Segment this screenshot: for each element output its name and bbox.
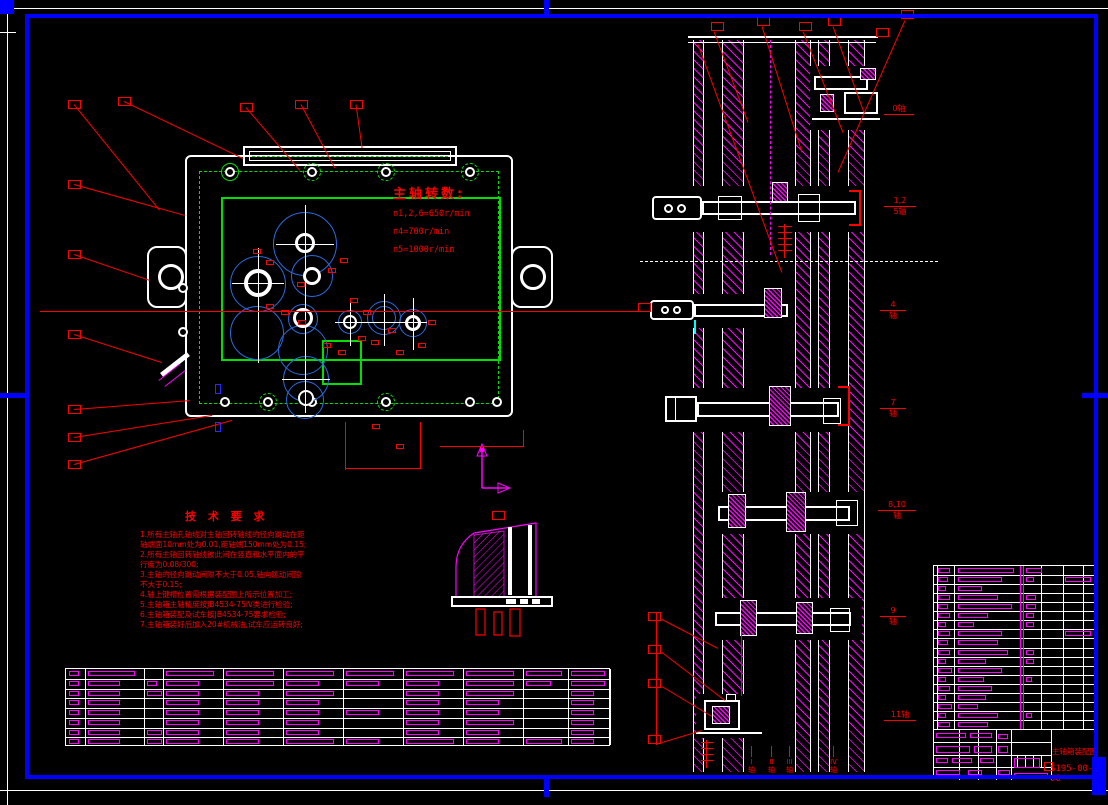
corner-cross-v <box>7 25 8 40</box>
drawing-border <box>25 14 1098 779</box>
cad-drawing-canvas: 主轴转数: n1,2,6=650r/min n4=700r/min n5=100… <box>0 0 1108 805</box>
paper-edge-bottom <box>0 790 1108 791</box>
center-mark-top <box>544 0 549 16</box>
corner-cross-h <box>0 32 16 33</box>
paper-edge-left <box>7 0 8 805</box>
corner-mark-bottomright <box>1092 757 1106 795</box>
corner-mark-topleft <box>0 0 14 14</box>
center-mark-left <box>0 393 26 398</box>
paper-edge-top <box>0 8 1108 9</box>
center-mark-right <box>1082 393 1108 398</box>
center-mark-bottom <box>544 777 549 797</box>
